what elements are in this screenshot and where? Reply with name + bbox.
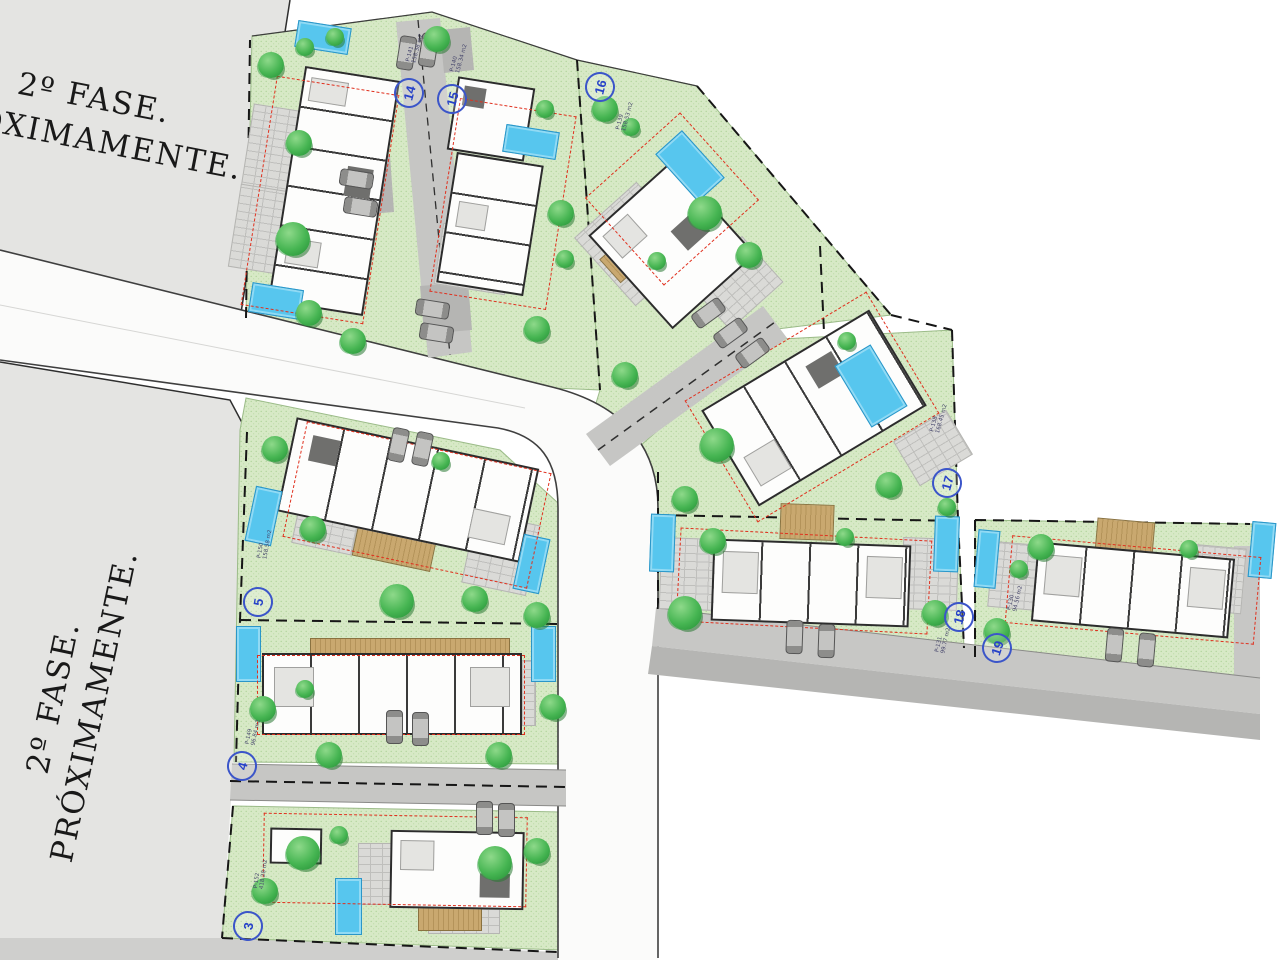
car	[1105, 627, 1125, 662]
tree-icon	[536, 100, 554, 118]
tree-icon	[300, 516, 326, 542]
tree-icon	[340, 328, 366, 354]
tree-icon	[258, 52, 284, 78]
tree-icon	[688, 196, 722, 230]
tree-icon	[524, 838, 550, 864]
pool	[531, 626, 556, 682]
tree-icon	[380, 584, 414, 618]
plot-number: 19	[988, 639, 1007, 657]
tree-icon	[286, 836, 320, 870]
tree-icon	[296, 680, 314, 698]
car	[386, 710, 403, 744]
plot-number: 4	[234, 761, 250, 772]
tree-icon	[296, 38, 314, 56]
tree-icon	[838, 332, 856, 350]
car	[476, 801, 493, 835]
tree-icon	[478, 846, 512, 880]
tree-icon	[524, 316, 550, 342]
site-plan-canvas: 2º FASE. PRÓXIMAMENTE. 2º FASE. PRÓXIMAM…	[0, 0, 1280, 960]
tree-icon	[1028, 534, 1054, 560]
plot-number: 18	[950, 608, 968, 626]
tree-icon	[262, 436, 288, 462]
tree-icon	[612, 362, 638, 388]
tree-icon	[462, 586, 488, 612]
deck	[310, 638, 510, 654]
tree-icon	[938, 498, 956, 516]
tree-icon	[876, 472, 902, 498]
car	[785, 620, 803, 655]
tree-icon	[1010, 560, 1028, 578]
tree-icon	[524, 602, 550, 628]
tree-icon	[276, 222, 310, 256]
car	[817, 624, 835, 659]
tree-icon	[548, 200, 574, 226]
tree-icon	[736, 242, 762, 268]
plot-number: 17	[938, 474, 956, 492]
pool	[933, 516, 960, 573]
plot-number: 3	[240, 921, 256, 931]
tree-icon	[330, 826, 348, 844]
plot-number: 16	[591, 78, 609, 96]
tree-icon	[432, 452, 450, 470]
plot-number: 15	[443, 90, 461, 108]
tree-icon	[672, 486, 698, 512]
tree-icon	[540, 694, 566, 720]
car	[412, 712, 429, 746]
tree-icon	[296, 300, 322, 326]
car	[1137, 632, 1157, 667]
tree-icon	[1180, 540, 1198, 558]
plot-number: 14	[400, 84, 418, 102]
tree-icon	[648, 252, 666, 270]
tree-icon	[668, 596, 702, 630]
tree-icon	[556, 250, 574, 268]
tree-icon	[486, 742, 512, 768]
tree-icon	[836, 528, 854, 546]
tree-icon	[326, 28, 344, 46]
tree-icon	[316, 742, 342, 768]
pool	[649, 514, 676, 573]
tree-icon	[424, 26, 450, 52]
tree-icon	[700, 528, 726, 554]
plot-number: 5	[250, 597, 266, 607]
car	[498, 803, 515, 837]
tree-icon	[286, 130, 312, 156]
tree-icon	[700, 428, 734, 462]
